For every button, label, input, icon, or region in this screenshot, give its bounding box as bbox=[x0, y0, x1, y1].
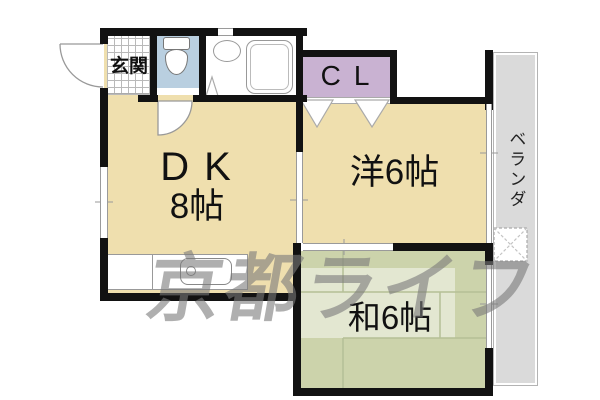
wall-veranda-stub-top bbox=[485, 50, 493, 110]
entrance-door-swing-icon bbox=[60, 44, 103, 87]
window-bath-top bbox=[218, 28, 233, 36]
closet-folding-doors-icon bbox=[301, 100, 389, 127]
wall-western-top bbox=[390, 97, 491, 104]
wall-left-mid bbox=[100, 88, 108, 167]
dk-label: DK bbox=[122, 146, 272, 188]
wall-closet-top bbox=[296, 50, 397, 57]
sliding-door-dk-western bbox=[296, 152, 303, 243]
bath-folding-door-icon bbox=[206, 77, 218, 96]
wall-toilet-bath bbox=[199, 35, 206, 95]
wall-closet-right bbox=[390, 50, 397, 104]
entrance-label: 玄関 bbox=[107, 57, 151, 77]
wall-entrance-toilet bbox=[150, 35, 157, 102]
wall-left-stub-top bbox=[100, 28, 108, 44]
wall-left-bottom bbox=[100, 238, 108, 301]
window-dk-left bbox=[100, 167, 108, 238]
watermark-text: 京都ライフ bbox=[141, 252, 544, 326]
veranda-label: ベランダ bbox=[493, 100, 538, 240]
closet-label: CL bbox=[303, 61, 390, 90]
wall-bath-bottom bbox=[193, 95, 307, 102]
dk-size-label: 8帖 bbox=[122, 189, 272, 226]
wall-center-vertical bbox=[296, 28, 303, 152]
wall-toilet-door-stub bbox=[138, 95, 158, 102]
window-western-veranda bbox=[486, 104, 492, 243]
wall-japanese-bottom bbox=[293, 388, 493, 396]
toilet-door-swing-icon bbox=[158, 101, 192, 135]
floorplan: 玄関 CL DK 8帖 洋6帖 和6帖 ベランダ 京都ライフ bbox=[0, 0, 600, 400]
western-room-label: 洋6帖 bbox=[303, 155, 486, 192]
